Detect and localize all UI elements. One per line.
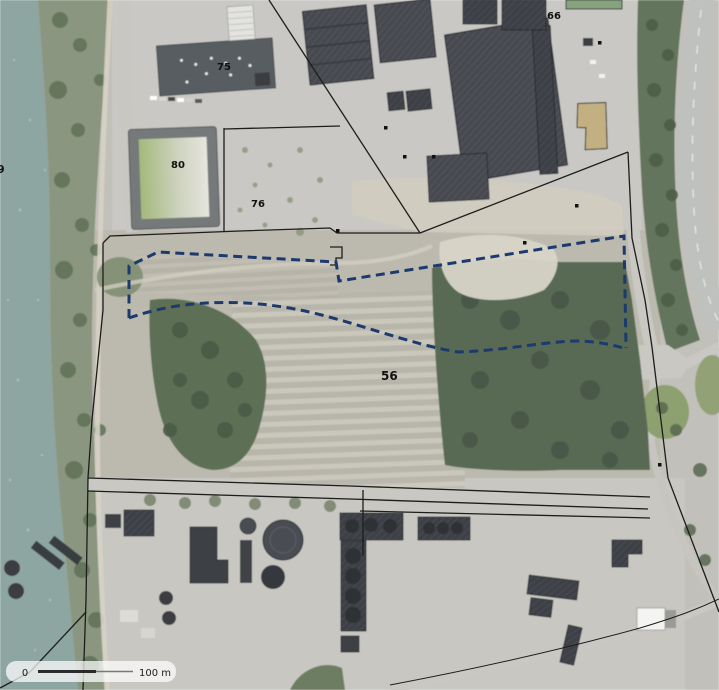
parcel-label-66: 66 (547, 11, 561, 22)
vertical-tank-building (341, 541, 366, 631)
parcel-label-76: 76 (251, 199, 265, 210)
light-shed-2 (141, 628, 155, 638)
digester-dome (263, 520, 303, 560)
white-building-annex (665, 610, 676, 628)
tank-medium (261, 565, 285, 589)
clarifier-row-building-2 (418, 517, 470, 540)
tank-small-1 (240, 518, 256, 534)
building-75 (156, 38, 275, 96)
plant-narrow-building (240, 540, 252, 583)
tank-small-2 (159, 591, 173, 605)
tank-small-3 (162, 611, 176, 625)
small-building-1 (387, 91, 405, 111)
parcel-label-56: 56 (381, 369, 398, 383)
top-edge-building-2 (502, 0, 546, 30)
factory-hall-b (374, 0, 436, 63)
top-edge-building-1 (463, 0, 497, 24)
parcel-label-75: 75 (217, 62, 231, 73)
parcel-label-9: 9 (0, 163, 5, 176)
scale-bar: 0 100 m (6, 661, 176, 682)
tank-left-2 (8, 583, 24, 599)
plant-building-3 (529, 598, 553, 618)
parcel-label-80: 80 (171, 160, 185, 171)
gravel-patch (439, 235, 557, 300)
small-building-2 (406, 89, 432, 111)
orthophoto-layer (0, 0, 719, 690)
scale-bar-label: 100 m (139, 668, 171, 679)
scale-bar-zero: 0 (22, 668, 28, 679)
treatment-plant-yard (85, 478, 685, 690)
plant-building-1 (124, 510, 154, 536)
roof-unit (255, 72, 271, 86)
plant-shed-2 (341, 636, 359, 652)
light-shed-1 (120, 610, 138, 622)
basin-80 (128, 126, 219, 229)
map-canvas: 9 75 80 76 66 56 0 100 m (0, 0, 719, 690)
factory-hall-a (302, 5, 373, 85)
plant-shed-1 (105, 514, 121, 528)
clarifier-row-building (340, 513, 403, 540)
small-structure (583, 38, 593, 46)
basin-pond (139, 137, 210, 219)
white-building (637, 608, 665, 630)
green-roof-building (566, 0, 622, 9)
tank-left-1 (4, 560, 20, 576)
white-warehouse (227, 5, 255, 41)
